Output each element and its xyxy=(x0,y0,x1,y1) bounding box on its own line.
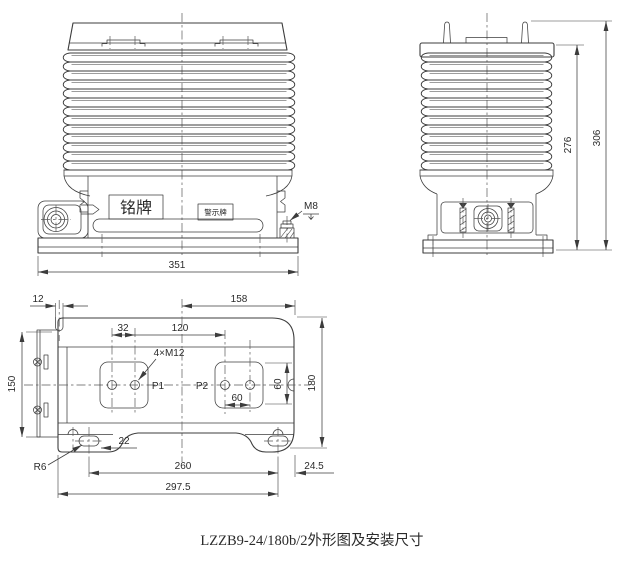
dimension-150: 150 xyxy=(7,332,52,437)
nameplate-label: 铭牌 xyxy=(120,199,152,217)
dimension-32: 32 xyxy=(112,323,135,335)
p1-label: P1 xyxy=(152,381,165,392)
dim-60-horizontal-label: 60 xyxy=(231,393,243,404)
foot-right xyxy=(245,427,294,497)
primary-studs xyxy=(444,22,529,43)
dimension-120: 120 xyxy=(135,323,225,335)
pedestal-side xyxy=(420,170,553,235)
dim-24p5-label: 24.5 xyxy=(304,461,324,472)
nameplate: 铭牌 xyxy=(109,195,163,219)
dim-12-label: 12 xyxy=(32,294,44,305)
dim-351-label: 351 xyxy=(169,260,186,271)
thread-label: 4×M12 xyxy=(154,348,185,359)
flange-screw xyxy=(34,355,49,369)
flange-screw xyxy=(34,403,49,417)
m8-ground-bolt: M8 xyxy=(280,201,319,243)
dimension-24p5: 24.5 xyxy=(295,455,334,477)
dim-22-label: 22 xyxy=(118,436,130,447)
dim-276-label: 276 xyxy=(563,136,574,153)
dimension-180: 180 xyxy=(290,317,327,448)
p2-label: P2 xyxy=(196,381,209,392)
dim-32-label: 32 xyxy=(117,323,129,334)
dimension-60-horizontal: 60 xyxy=(225,393,250,405)
warning-plate-label: 警示牌 xyxy=(204,207,227,217)
plan-view: P1 P2 4×M12 12 xyxy=(7,294,334,498)
secondary-terminal-box-front xyxy=(38,201,99,238)
dim-150-label: 150 xyxy=(7,375,18,392)
dimension-297p5: 297.5 xyxy=(58,455,278,498)
technical-drawing-page: 铭牌 警示牌 M8 xyxy=(0,0,624,567)
bellows-side xyxy=(420,53,553,170)
pedestal-front xyxy=(64,170,292,238)
dimension-351: 351 xyxy=(38,256,298,276)
dim-60-vertical-label: 60 xyxy=(273,378,284,390)
m8-label: M8 xyxy=(304,201,318,212)
front-view: 铭牌 警示牌 M8 xyxy=(38,13,319,276)
dimension-158: 158 xyxy=(182,294,295,315)
dim-180-label: 180 xyxy=(307,374,318,391)
base-front xyxy=(38,234,298,257)
dim-297p5-label: 297.5 xyxy=(165,482,190,493)
dim-120-label: 120 xyxy=(172,323,189,334)
dim-260-label: 260 xyxy=(175,461,192,472)
base-side xyxy=(423,235,553,257)
drawing-caption: LZZB9-24/180b/2外形图及安装尺寸 xyxy=(200,532,423,549)
dimension-276: 276 xyxy=(556,45,612,250)
left-flange xyxy=(34,330,59,437)
dim-306-label: 306 xyxy=(592,129,603,146)
dimension-260: 260 xyxy=(89,461,278,473)
warning-plate: 警示牌 xyxy=(198,204,233,220)
dim-158-label: 158 xyxy=(231,294,248,305)
side-view: 276 306 xyxy=(420,13,612,258)
top-cap xyxy=(68,23,287,50)
ground-symbol xyxy=(303,214,319,220)
terminal-pad-p1 xyxy=(100,328,148,414)
drawing-canvas: 铭牌 警示牌 M8 xyxy=(0,0,624,567)
terminal-centerline-ticks xyxy=(110,36,248,49)
r6-label: R6 xyxy=(34,462,47,473)
top-mounting-slot xyxy=(56,300,64,341)
secondary-terminal-box-side xyxy=(474,204,502,233)
bellows-front xyxy=(63,53,295,170)
dimension-22: 22 xyxy=(101,436,137,448)
